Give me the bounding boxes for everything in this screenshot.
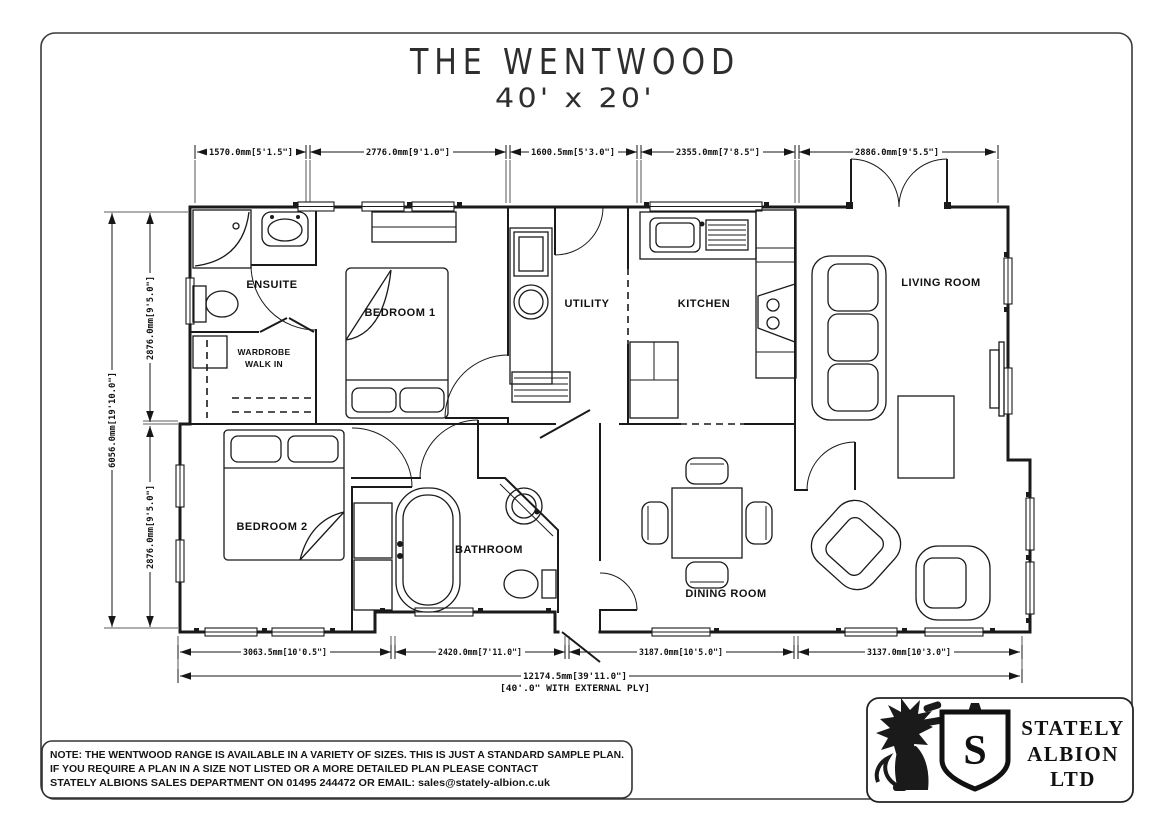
living-furniture	[802, 256, 1004, 620]
note-line-3: STATELY ALBIONS SALES DEPARTMENT ON 0149…	[50, 777, 550, 789]
dimensions-top: 1570.0mm[5'1.5"] 2776.0mm[9'1.0"] 1600.5…	[195, 145, 998, 203]
dim-top-1: 1570.0mm[5'1.5"]	[209, 148, 293, 158]
label-wardrobe-1: WARDROBE	[238, 347, 291, 357]
floor-plan: ENSUITE WARDROBE WALK IN BEDROOM 1 UTILI…	[176, 159, 1034, 662]
steps-icon	[512, 372, 570, 402]
hob-icon	[758, 284, 795, 342]
utility-fixtures	[510, 228, 570, 402]
logo-line-1: STATELY	[1021, 716, 1125, 740]
label-bedroom1: BEDROOM 1	[364, 307, 435, 319]
label-bathroom: BATHROOM	[455, 544, 523, 556]
bed1-icon	[346, 268, 448, 418]
note-box: NOTE: THE WENTWOOD RANGE IS AVAILABLE IN…	[42, 741, 632, 798]
dim-left-overall: 6056.0mm[19'10.0"]	[108, 372, 118, 468]
wall-right	[948, 207, 1030, 632]
dim-overall: 12174.5mm[39'11.0"]	[523, 672, 627, 682]
note-line-1: NOTE: THE WENTWOOD RANGE IS AVAILABLE IN…	[50, 749, 624, 761]
shield-letter: S	[963, 728, 986, 774]
logo: S STATELY ALBION LTD	[867, 698, 1133, 802]
dim-top-5: 2886.0mm[9'5.5"]	[855, 148, 939, 158]
wentwood-floor-plan: THE WENTWOOD 40' x 20' 1570.0mm[5'1.5"] …	[0, 0, 1171, 813]
dim-bottom-2: 2420.0mm[7'11.0"]	[438, 648, 522, 658]
toilet2-icon	[542, 570, 556, 598]
note-line-2: IF YOU REQUIRE A PLAN IN A SIZE NOT LIST…	[50, 763, 539, 775]
bedroom2-furniture	[224, 430, 392, 610]
label-kitchen: KITCHEN	[678, 298, 730, 310]
sofa-icon	[812, 256, 886, 420]
bath-icon	[396, 488, 460, 612]
bed2-icon	[224, 430, 344, 560]
label-utility: UTILITY	[564, 298, 609, 310]
dim-bottom-1: 3063.5mm[10'0.5"]	[243, 648, 327, 658]
logo-line-2: ALBION	[1027, 742, 1119, 766]
dining-furniture	[642, 458, 772, 588]
dimensions-bottom: 3063.5mm[10'0.5"] 2420.0mm[7'11.0"] 3187…	[178, 636, 1022, 694]
dim-top-4: 2355.0mm[7'8.5"]	[676, 148, 760, 158]
kitchen-fixtures	[630, 210, 796, 418]
dim-bottom-3: 3187.0mm[10'5.0"]	[639, 648, 723, 658]
wall-bottom-left	[180, 207, 1030, 632]
shield-icon: S	[942, 703, 1008, 789]
windows	[176, 202, 1034, 636]
label-wardrobe-2: WALK IN	[245, 359, 283, 369]
dining-table-icon	[672, 488, 742, 558]
dim-top-3: 1600.5mm[5'3.0"]	[531, 148, 615, 158]
label-ensuite: ENSUITE	[246, 279, 297, 291]
dim-bottom-4: 3137.0mm[10'3.0"]	[867, 648, 951, 658]
kitchen-units-icon	[756, 210, 796, 378]
armchair2-icon	[916, 546, 990, 620]
shower-icon	[193, 210, 251, 268]
dim-top-2: 2776.0mm[9'1.0"]	[366, 148, 450, 158]
dim-left-lower: 2876.0mm[9'5.0"]	[146, 485, 156, 569]
table-icon	[898, 396, 954, 478]
plan-size: 40' x 20'	[495, 83, 655, 114]
dimensions-left: 6056.0mm[19'10.0"] 2876.0mm[9'5.0"] 2876…	[104, 212, 188, 628]
wall-kitchen-living	[795, 207, 807, 490]
label-dining: DINING ROOM	[685, 588, 766, 600]
tv-icon	[990, 350, 999, 408]
toilet-icon	[193, 286, 206, 322]
label-living: LIVING ROOM	[901, 277, 980, 289]
plan-title: THE WENTWOOD	[409, 42, 740, 83]
logo-line-3: LTD	[1050, 767, 1096, 791]
dim-overall-note: [40'.0" WITH EXTERNAL PLY]	[500, 684, 650, 694]
armchair1-icon	[802, 491, 909, 598]
label-bedroom2: BEDROOM 2	[236, 521, 307, 533]
plan-sheet: THE WENTWOOD 40' x 20' 1570.0mm[5'1.5"] …	[0, 0, 1171, 813]
dim-left-upper: 2876.0mm[9'5.0"]	[146, 276, 156, 360]
cupboard-icon	[354, 503, 392, 558]
